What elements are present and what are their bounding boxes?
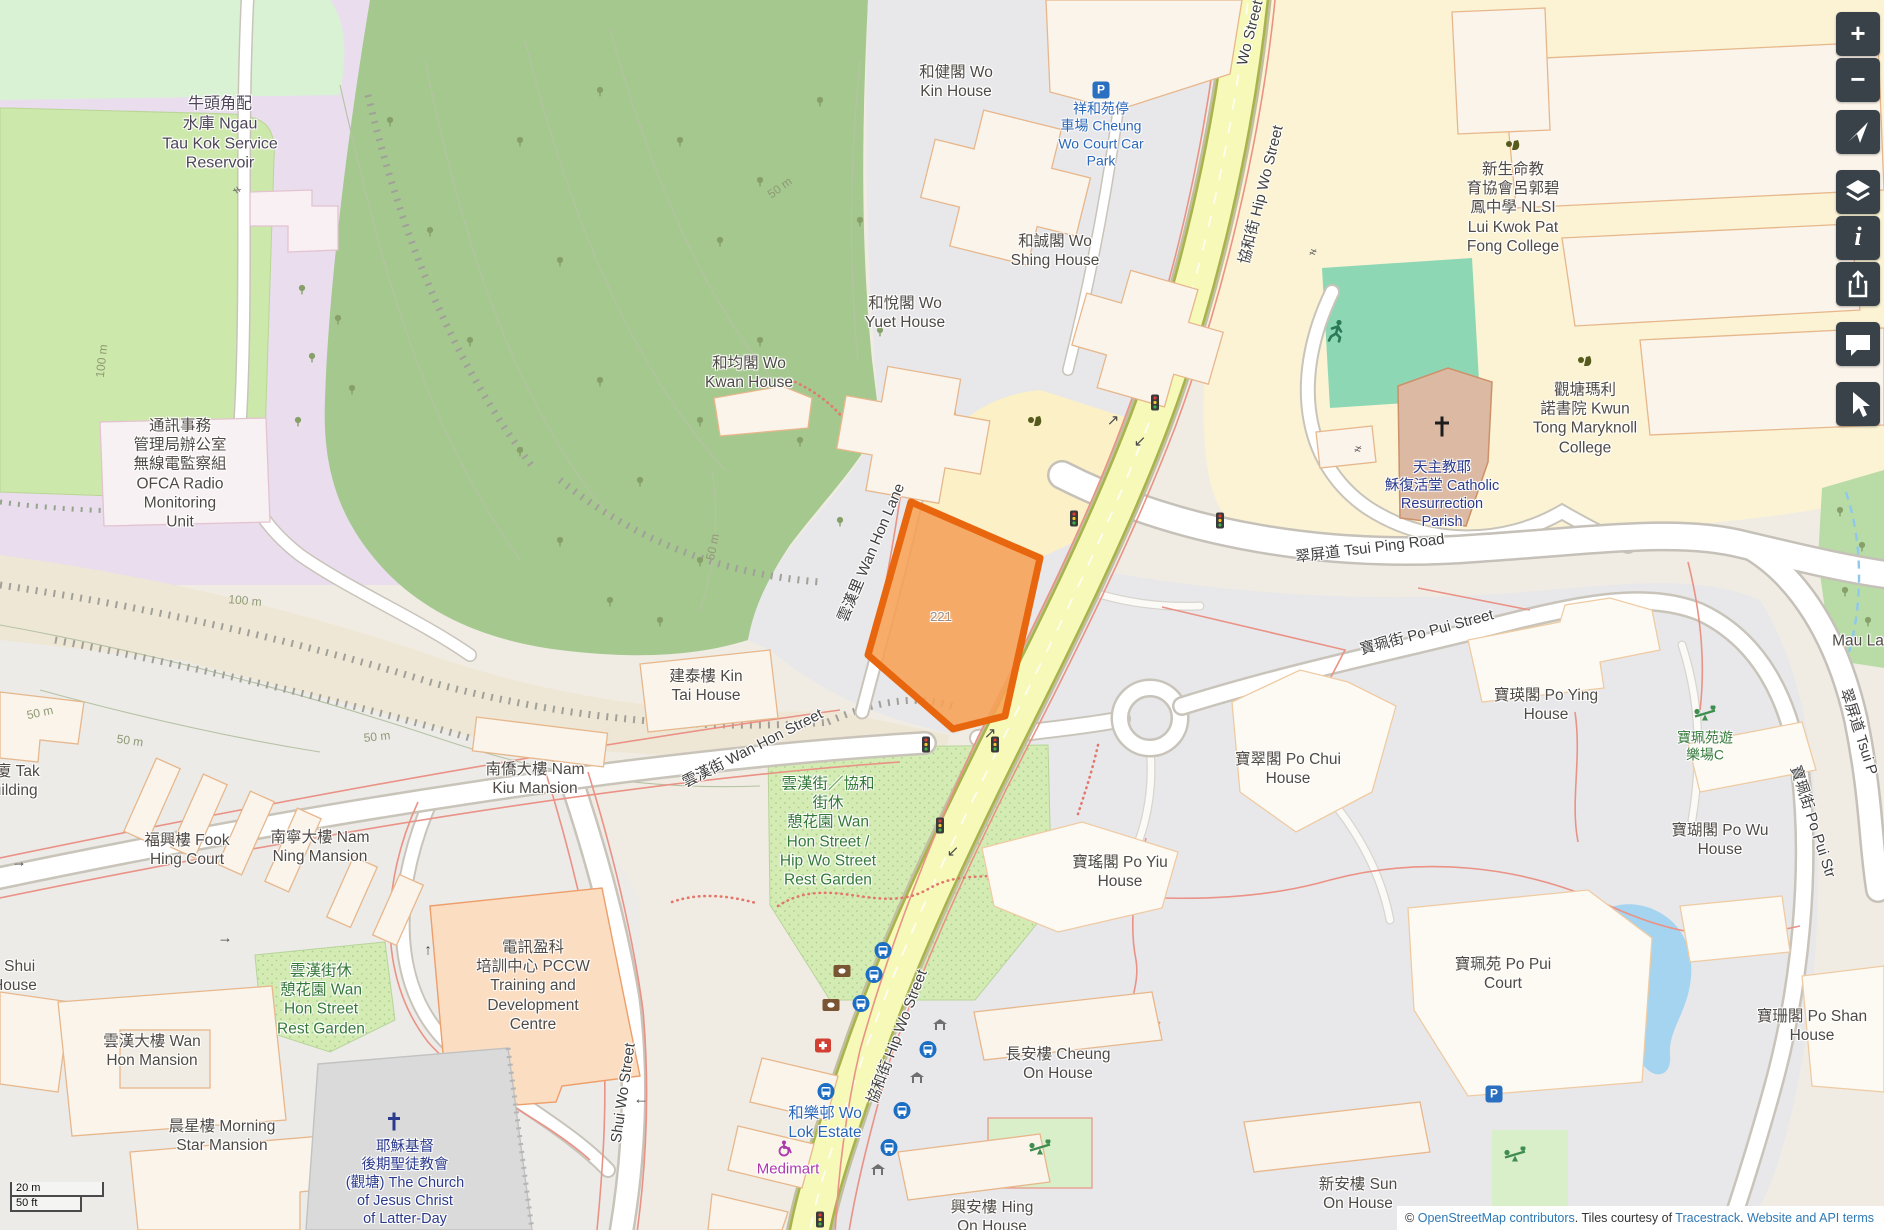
scale-bar: 20 m 50 ft bbox=[10, 1182, 104, 1212]
copyright-symbol: © bbox=[1405, 1211, 1414, 1225]
attribution-middle: . Tiles courtesy of bbox=[1575, 1211, 1676, 1225]
location-arrow-icon bbox=[1842, 116, 1874, 148]
terms-link[interactable]: Website and API terms bbox=[1747, 1211, 1874, 1225]
map-key-button[interactable]: i bbox=[1836, 216, 1880, 260]
query-features-button[interactable] bbox=[1836, 382, 1880, 426]
zoom-in-button[interactable]: + bbox=[1836, 12, 1880, 56]
ofca-building bbox=[100, 418, 270, 526]
scale-metric: 20 m bbox=[10, 1182, 104, 1197]
lds-church-building bbox=[306, 1048, 532, 1230]
share-button[interactable] bbox=[1836, 262, 1880, 306]
scale-imperial: 50 ft bbox=[10, 1197, 82, 1212]
share-icon bbox=[1842, 268, 1874, 300]
note-bubble-icon bbox=[1842, 328, 1874, 360]
tracestrack-link[interactable]: Tracestrack bbox=[1675, 1211, 1740, 1225]
show-my-location-button[interactable] bbox=[1836, 110, 1880, 154]
layers-button[interactable] bbox=[1836, 170, 1880, 214]
add-note-button[interactable] bbox=[1836, 322, 1880, 366]
query-cursor-icon bbox=[1842, 388, 1874, 420]
map-canvas[interactable] bbox=[0, 0, 1884, 1230]
zoom-out-label: − bbox=[1850, 64, 1865, 94]
zoom-in-label: + bbox=[1850, 18, 1865, 48]
map-viewport[interactable]: 牛頭角配 水庫 Ngau Tau Kok Service Reservoir 通… bbox=[0, 0, 1884, 1230]
attribution-bar: © OpenStreetMap contributors. Tiles cour… bbox=[1397, 1206, 1884, 1230]
zoom-out-button[interactable]: − bbox=[1836, 58, 1880, 102]
info-icon: i bbox=[1854, 222, 1861, 251]
osm-contributors-link[interactable]: OpenStreetMap contributors bbox=[1418, 1211, 1575, 1225]
layers-icon bbox=[1842, 176, 1874, 208]
